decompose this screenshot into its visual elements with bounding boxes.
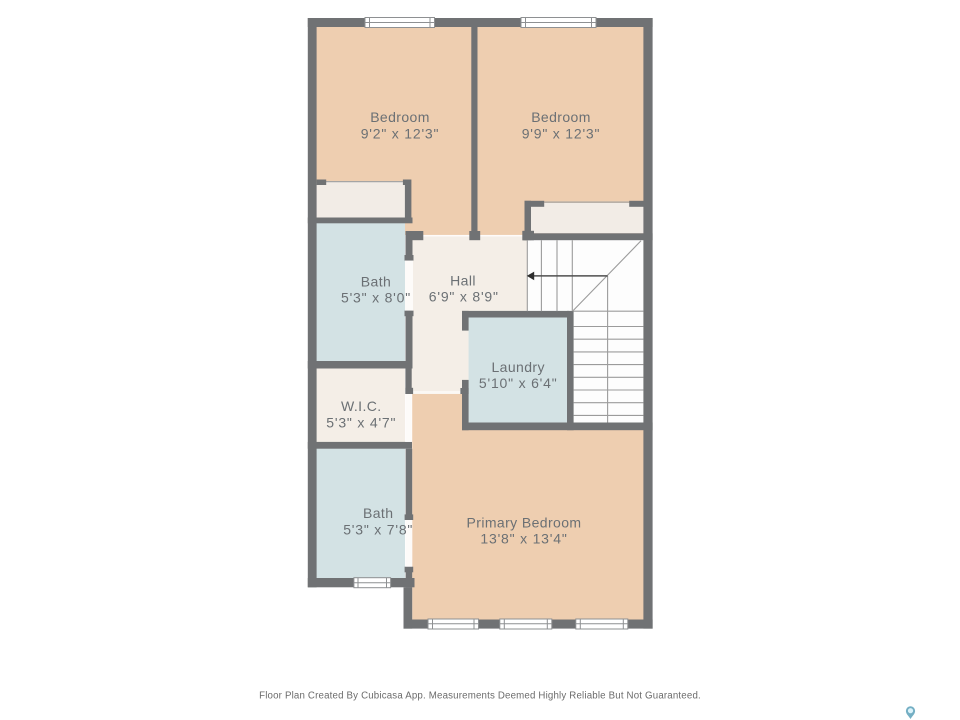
svg-text:13'8" x 13'4": 13'8" x 13'4"	[480, 530, 567, 546]
svg-text:5'10" x 6'4": 5'10" x 6'4"	[479, 375, 558, 391]
svg-text:Bath: Bath	[363, 505, 393, 521]
svg-text:9'9" x 12'3": 9'9" x 12'3"	[522, 126, 601, 142]
svg-text:5'3" x 7'8": 5'3" x 7'8"	[343, 521, 413, 537]
svg-text:Laundry: Laundry	[491, 359, 544, 375]
svg-text:Floor Plan Created By Cubicasa: Floor Plan Created By Cubicasa App. Meas…	[259, 691, 701, 702]
svg-text:9'2" x 12'3": 9'2" x 12'3"	[361, 126, 440, 142]
svg-text:Primary Bedroom: Primary Bedroom	[467, 515, 582, 531]
svg-text:Bedroom: Bedroom	[531, 109, 591, 125]
svg-text:Hall: Hall	[450, 272, 476, 288]
svg-text:W.I.C.: W.I.C.	[341, 398, 382, 414]
svg-text:5'3" x 8'0": 5'3" x 8'0"	[341, 289, 411, 305]
svg-text:Bath: Bath	[361, 274, 391, 290]
svg-text:Bedroom: Bedroom	[370, 109, 430, 125]
svg-text:5'3" x 4'7": 5'3" x 4'7"	[326, 415, 396, 431]
svg-text:6'9" x 8'9": 6'9" x 8'9"	[429, 289, 499, 305]
